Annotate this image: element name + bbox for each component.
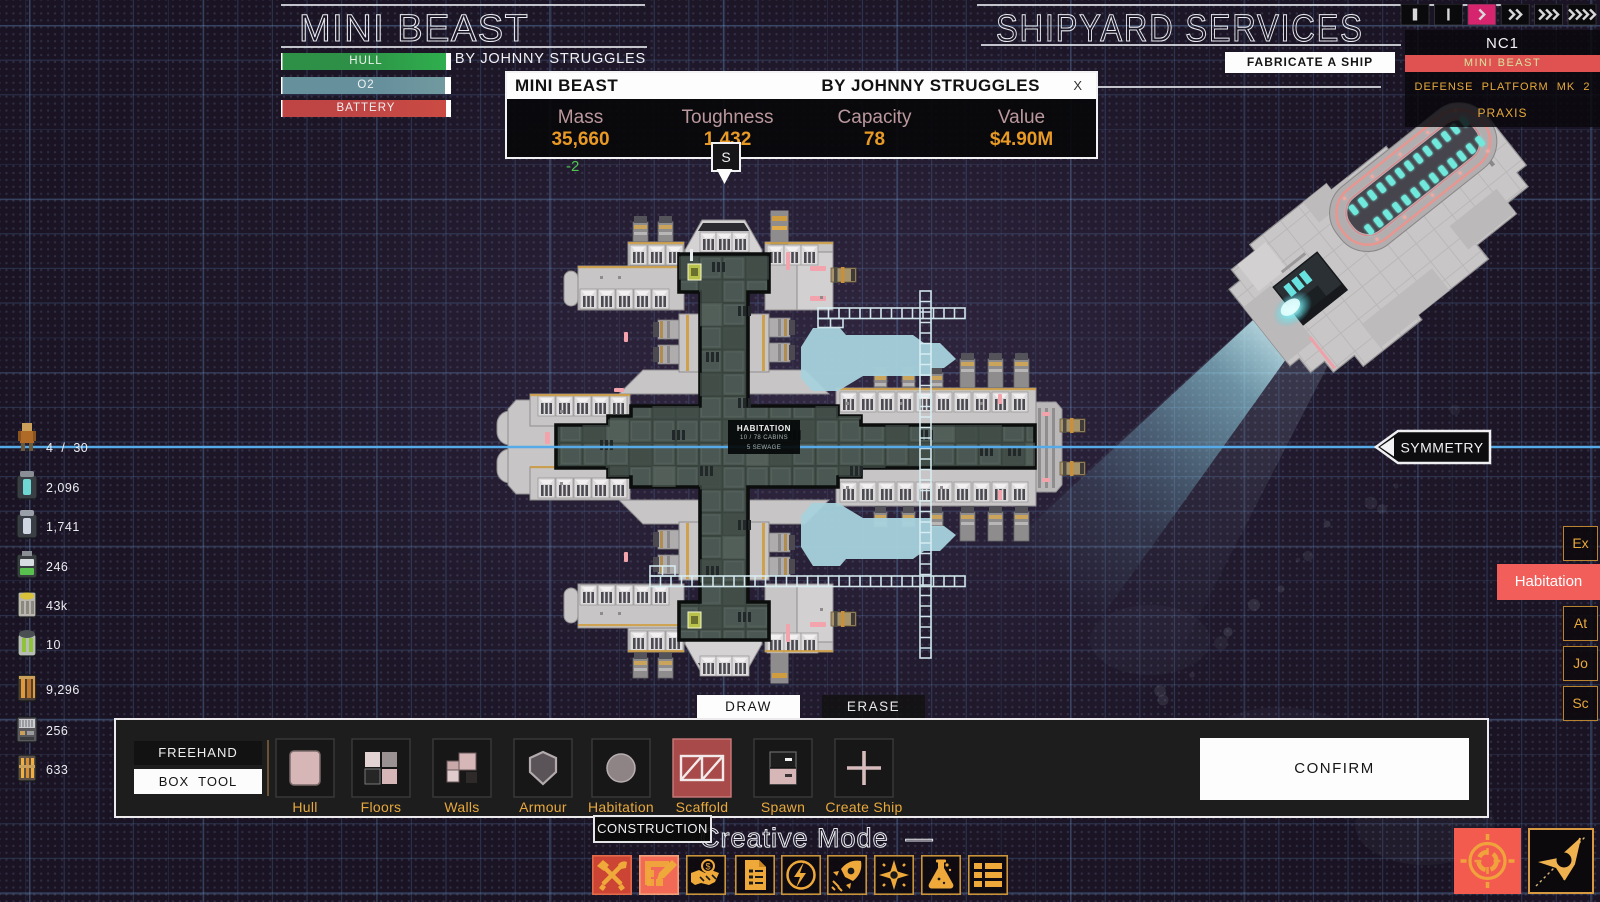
svg-text:$: $ [705,862,710,872]
svg-text:SYMMETRY: SYMMETRY [1400,440,1483,456]
